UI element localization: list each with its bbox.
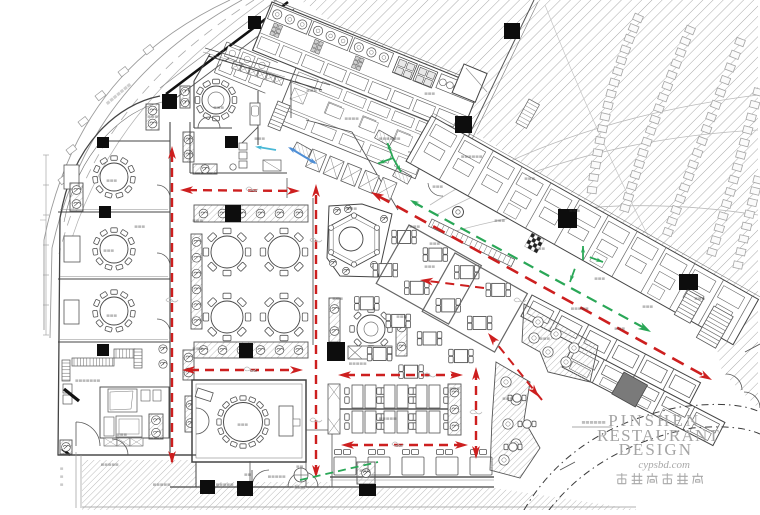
svg-text:cypsbd.com: cypsbd.com [638, 459, 690, 471]
svg-text:DESIGN: DESIGN [619, 440, 693, 459]
